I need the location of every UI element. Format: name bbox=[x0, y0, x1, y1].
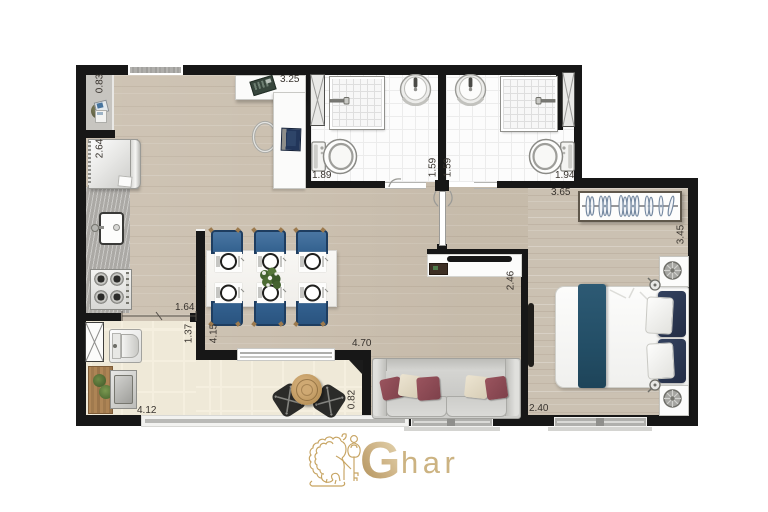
svg-text:har: har bbox=[401, 445, 459, 480]
svg-text:G: G bbox=[360, 432, 400, 490]
